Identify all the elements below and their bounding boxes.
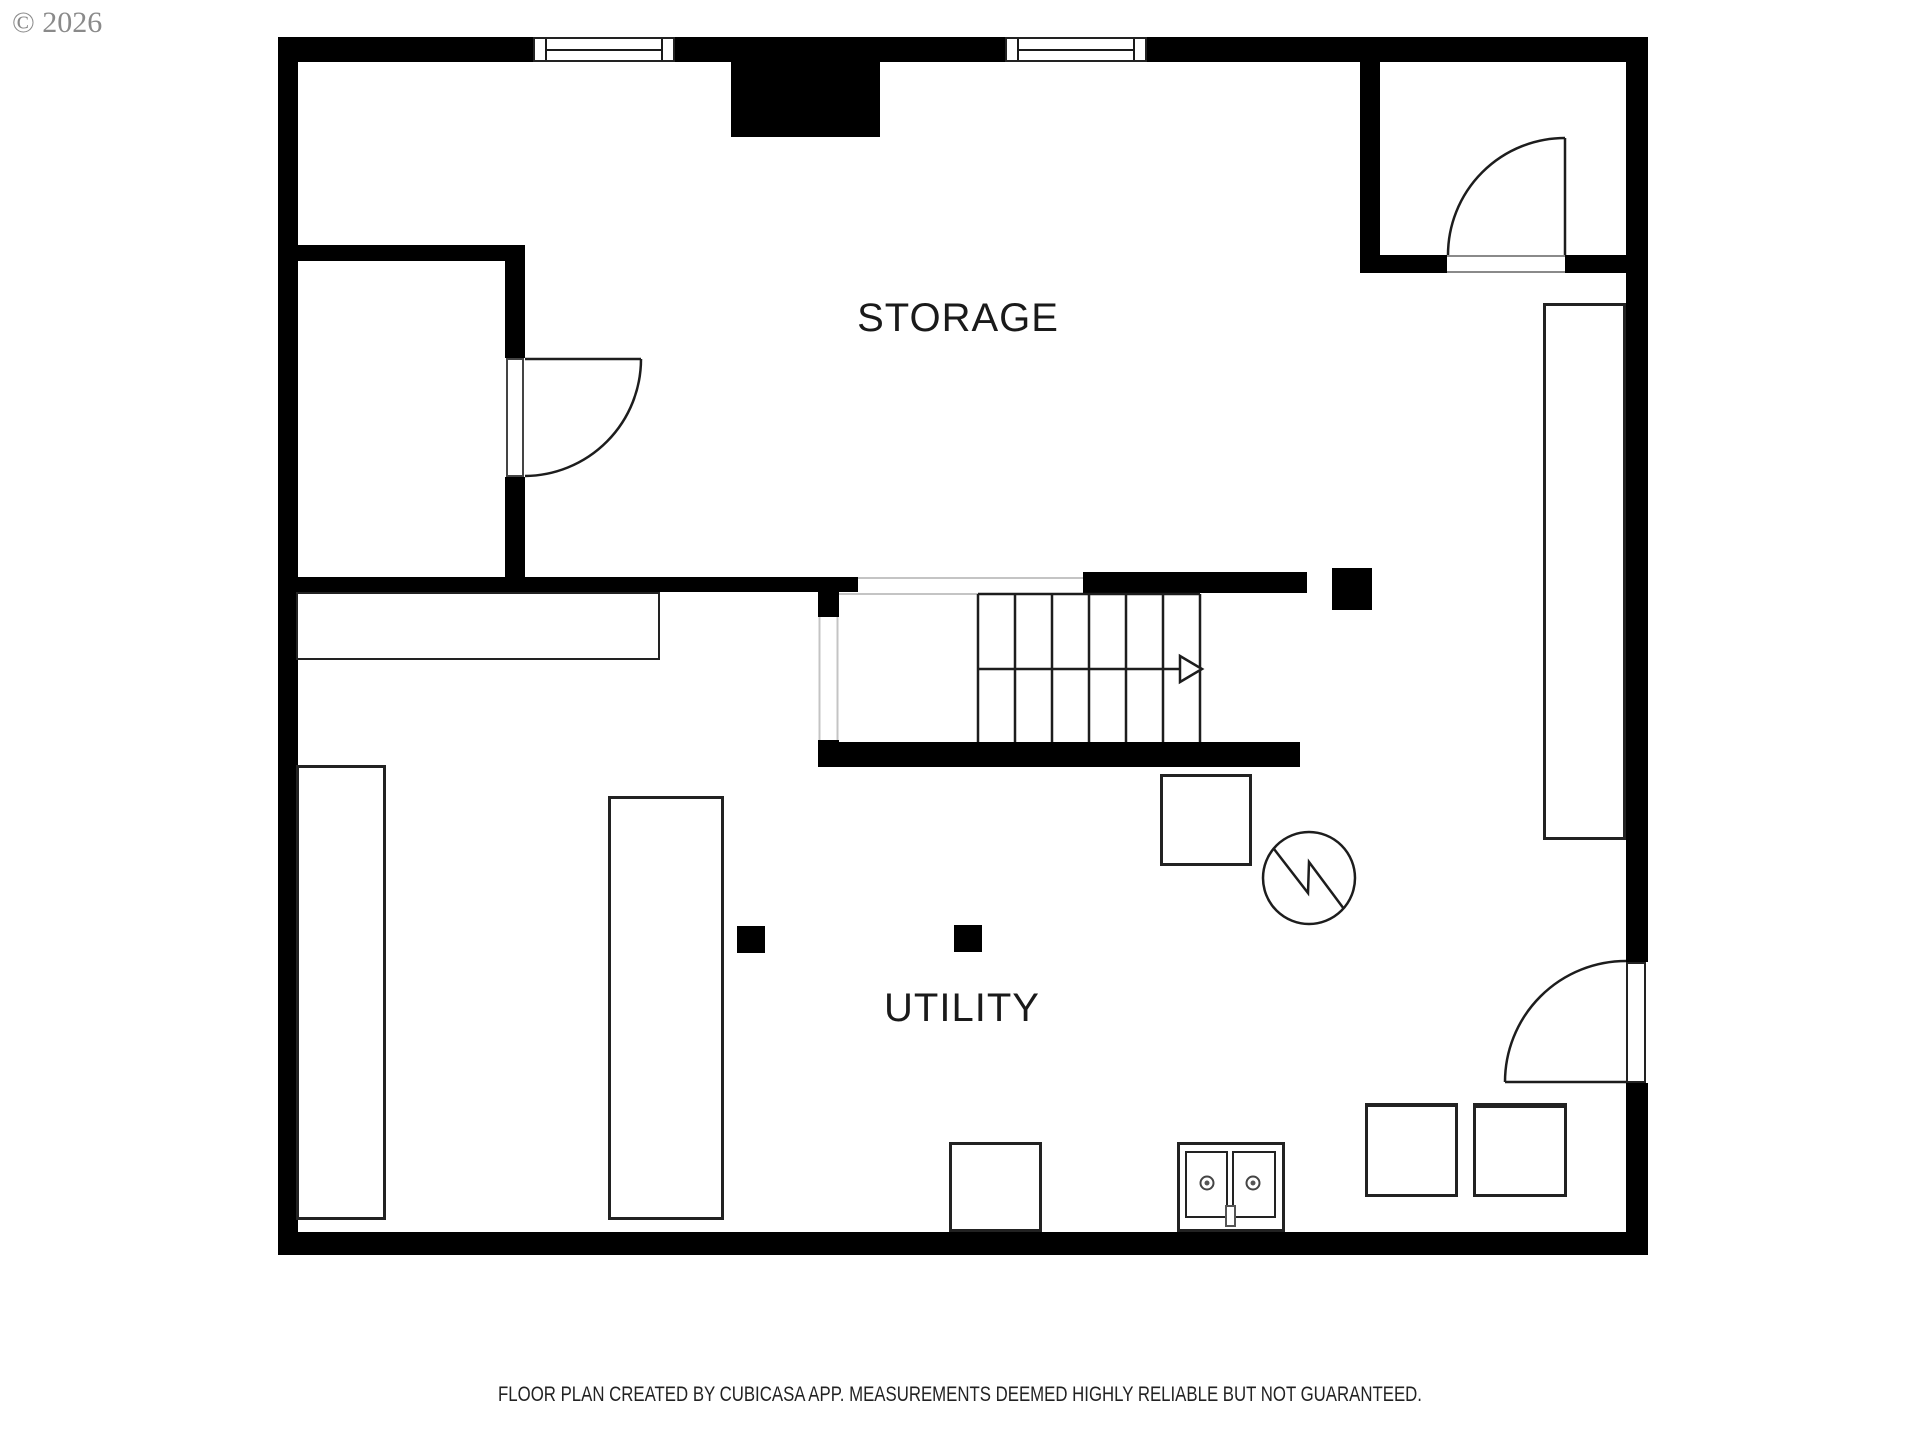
stairs: [978, 594, 1202, 742]
doors: [525, 138, 1626, 1082]
water-heater-zigzag: [1274, 849, 1344, 909]
stair-open-edges: [820, 578, 1084, 740]
stair-direction-arrow-head: [1180, 656, 1202, 682]
copyright-watermark: © 2026: [12, 6, 102, 40]
closet-tr-door-arc: [1448, 138, 1565, 255]
floor-plan: © 2026 STORAGE UTILITY FLOOR PLAN CREATE…: [0, 0, 1920, 1440]
footer-disclaimer: FLOOR PLAN CREATED BY CUBICASA APP. MEAS…: [192, 1383, 1728, 1407]
linework-overlay: [0, 0, 1920, 1440]
sink-faucets: [1201, 1177, 1260, 1190]
faucet-left-inner: [1205, 1181, 1210, 1186]
faucet-right-inner: [1251, 1181, 1256, 1186]
closet-tl-door-arc: [525, 359, 641, 476]
room-label-storage: STORAGE: [857, 296, 1059, 341]
room-label-utility: UTILITY: [884, 986, 1040, 1031]
right-door-arc: [1505, 961, 1626, 1082]
water-heater: [1263, 832, 1355, 924]
